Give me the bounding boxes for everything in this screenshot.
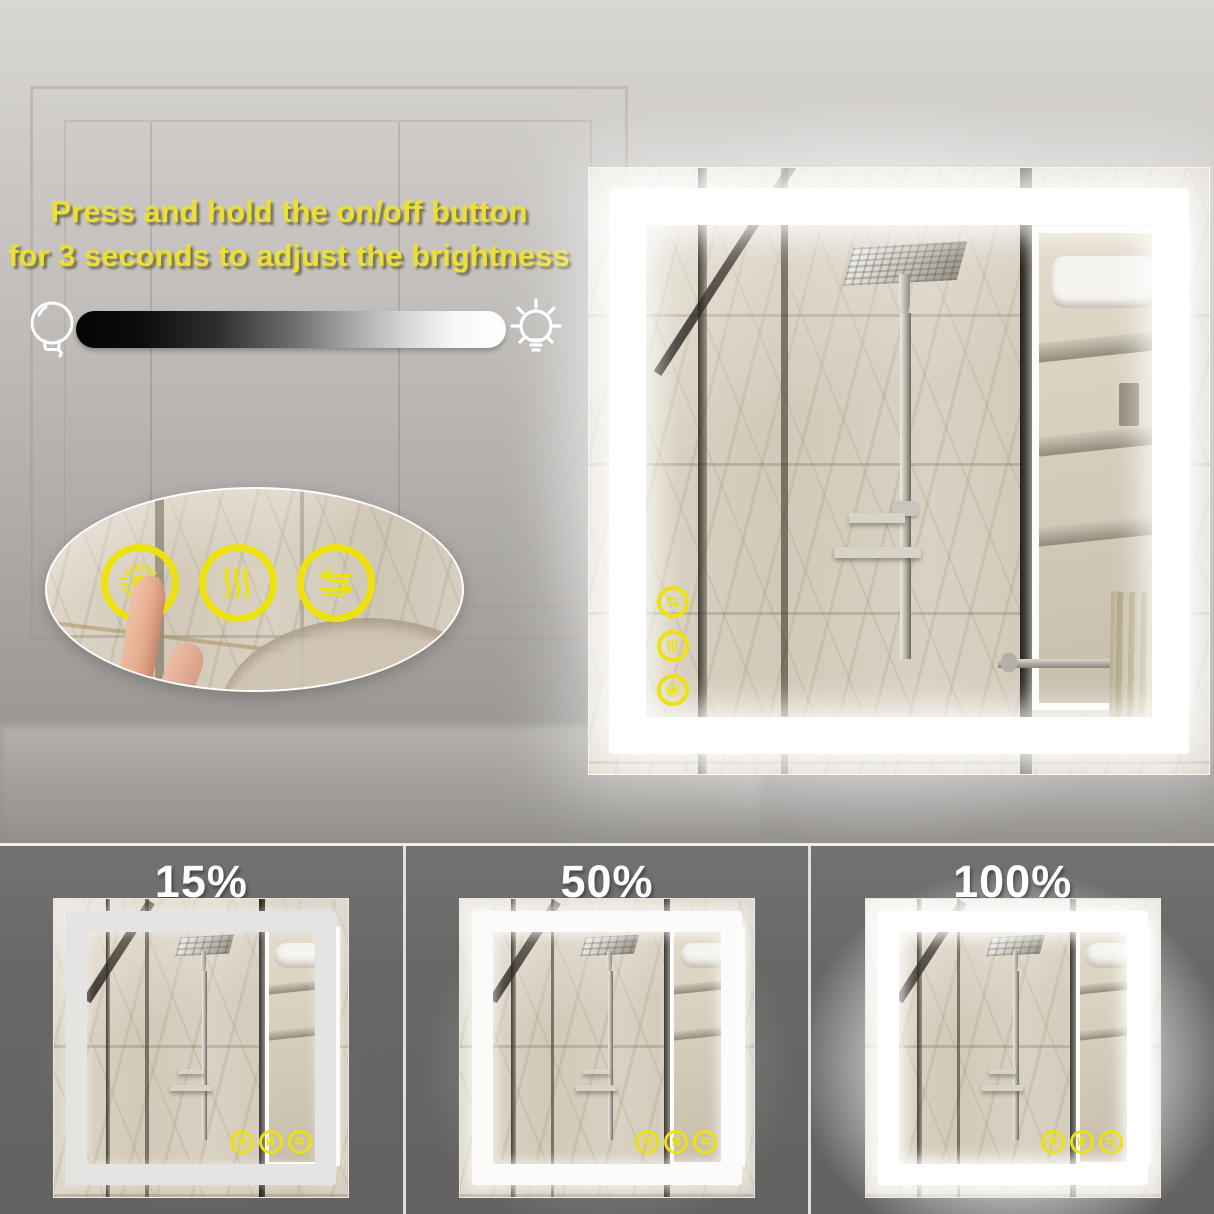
swap-arrows-icon[interactable] [288, 1130, 312, 1154]
sun-icon[interactable] [657, 674, 689, 706]
marble-trim-line [45, 618, 287, 653]
led-light-frame [609, 188, 1189, 754]
vanity-edge [221, 618, 464, 692]
defog-icon[interactable] [259, 1130, 283, 1154]
swap-arrows-icon[interactable] [1099, 1130, 1123, 1154]
panel-100: 100% [808, 846, 1214, 1214]
defog-icon[interactable] [1070, 1130, 1094, 1154]
brightness-slider-row [0, 288, 580, 374]
led-mirror-15 [53, 898, 349, 1198]
defog-button[interactable] [199, 544, 277, 622]
led-mirror-100 [865, 898, 1161, 1198]
brightness-comparison: 15% [0, 843, 1214, 1214]
product-image: Press and hold the on/off button for 3 s… [0, 0, 1214, 1214]
swap-arrows-icon [313, 560, 359, 606]
swap-arrows-icon[interactable] [657, 586, 689, 618]
panel-50: 50% [403, 846, 809, 1214]
mirror-touch-icons [1041, 1130, 1123, 1154]
panel-15: 15% [0, 846, 403, 1214]
touch-buttons-inset [45, 487, 464, 692]
instruction-line-2: for 3 seconds to adjust the brightness [6, 234, 572, 278]
mirror-touch-icons [635, 1130, 717, 1154]
instruction-line-1: Press and hold the on/off button [6, 190, 572, 234]
defog-icon[interactable] [664, 1130, 688, 1154]
led-mirror-50 [459, 898, 755, 1198]
mirror-touch-icons [230, 1130, 312, 1154]
defog-icon[interactable] [657, 630, 689, 662]
mirror-touch-icons [657, 586, 689, 706]
instruction-text: Press and hold the on/off button for 3 s… [6, 190, 572, 278]
sun-icon[interactable] [230, 1130, 254, 1154]
bulb-on-icon [504, 290, 568, 375]
swap-arrows-icon[interactable] [693, 1130, 717, 1154]
switch-button[interactable] [297, 544, 375, 622]
defog-icon [215, 560, 261, 606]
top-section: Press and hold the on/off button for 3 s… [0, 0, 1214, 846]
bulb-off-icon [24, 296, 80, 373]
sun-icon[interactable] [1041, 1130, 1065, 1154]
sun-icon[interactable] [635, 1130, 659, 1154]
led-mirror-main [588, 167, 1210, 775]
brightness-gradient-slider[interactable] [76, 311, 506, 348]
